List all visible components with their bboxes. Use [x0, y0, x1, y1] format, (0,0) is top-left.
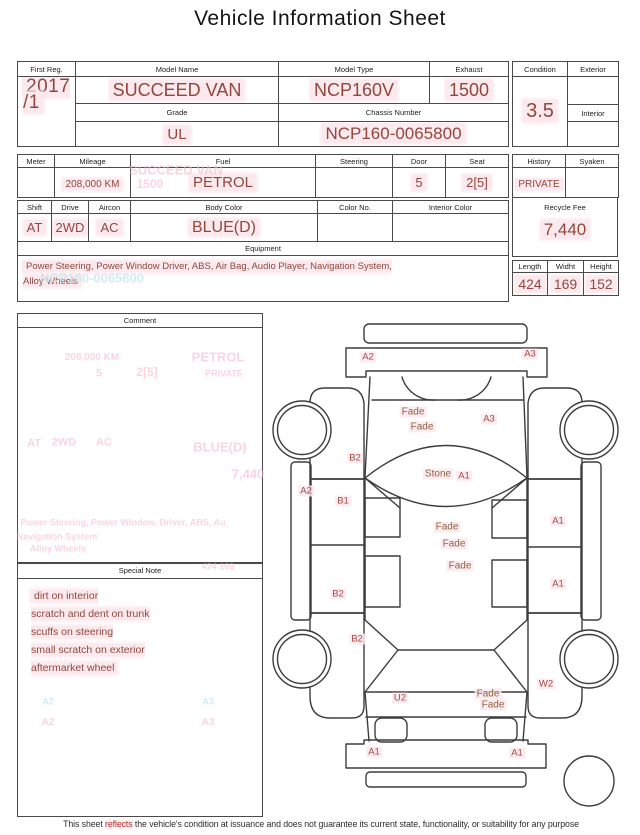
recycle-fee-value: 7,440: [513, 220, 617, 240]
rear-window-shape: [365, 650, 527, 692]
shift-header: Shift: [18, 201, 52, 214]
mileage-value: 208,000 KM: [55, 168, 131, 198]
special-note-body: dirt on interior scratch and dent on tru…: [18, 579, 262, 676]
pillar-box-left-lower: [365, 556, 400, 607]
rear-lamp-right: [485, 718, 517, 742]
aircon-value: AC: [89, 214, 131, 242]
doors-right: [528, 479, 582, 613]
rocker-right: [581, 462, 601, 620]
special-note-box: Special Note dirt on interior scratch an…: [17, 563, 263, 817]
first-reg-header: First Reg.: [18, 62, 76, 77]
fuel-header: Fuel: [131, 155, 316, 168]
seat-value: 2[5]: [446, 168, 509, 198]
wheel-front-right: [560, 401, 618, 459]
chassis-number-value: NCP160-0065800: [279, 122, 509, 147]
mileage-header: Mileage: [55, 155, 131, 168]
rear-bottom-strip: [366, 772, 526, 787]
seat-header: Seat: [446, 155, 509, 168]
disclaimer-text: This sheet reflects the vehicle's condit…: [10, 819, 632, 829]
wheel-rear-right: [560, 630, 618, 688]
exhaust-header: Exhaust: [430, 62, 509, 77]
recycle-fee-header: Recycle Fee: [513, 203, 617, 212]
rear-panel-lines: [365, 692, 527, 741]
syaken-header: Syaken: [566, 155, 619, 168]
chassis-number-header: Chassis Number: [279, 104, 509, 122]
height-value: 152: [584, 273, 619, 296]
hood-side-right: [523, 377, 527, 477]
history-header: History: [513, 155, 566, 168]
condition-score: 3.5: [513, 77, 568, 147]
shift-value: AT: [18, 214, 52, 242]
exterior-header: Exterior: [568, 62, 619, 77]
registration-table: First Reg. Model Name Model Type Exhaust…: [17, 61, 509, 147]
color-no-value-cell: [318, 214, 393, 242]
grade-value: UL: [76, 122, 279, 147]
color-no-header: Color No.: [318, 201, 393, 214]
specs-table-2: Shift Drive Aircon Body Color Color No. …: [17, 200, 509, 302]
drive-value: 2WD: [52, 214, 89, 242]
pillar-box-right-lower: [492, 560, 527, 607]
disclaimer-emphasis: reflects: [105, 819, 133, 829]
specs-table-1: Meter Mileage Fuel Steering Door Seat 20…: [17, 154, 509, 198]
equipment-header: Equipment: [18, 242, 509, 256]
recycle-fee-box: Recycle Fee 7,440: [512, 197, 618, 257]
pillar-box-right-upper: [492, 500, 527, 538]
width-header: Widht: [548, 261, 584, 273]
comment-box: Comment: [17, 313, 263, 563]
model-type-header: Model Type: [279, 62, 430, 77]
door-header: Door: [393, 155, 446, 168]
steering-header: Steering: [316, 155, 393, 168]
length-header: Length: [513, 261, 548, 273]
rear-lamp-left: [375, 718, 407, 742]
meter-header: Meter: [18, 155, 55, 168]
wheel-rear-left: [273, 630, 331, 688]
fuel-value: PETROL: [131, 168, 316, 198]
model-name-header: Model Name: [76, 62, 279, 77]
body-color-value: BLUE(D): [131, 214, 318, 242]
front-bumper-shape: [346, 348, 547, 377]
wheel-front-left: [273, 401, 331, 459]
headlight-left-arc: [402, 377, 435, 400]
width-value: 169: [548, 273, 584, 296]
drive-header: Drive: [52, 201, 89, 214]
aircon-header: Aircon: [89, 201, 131, 214]
height-header: Height: [584, 261, 619, 273]
steering-value-cell: [316, 168, 393, 198]
hood-side-left: [365, 377, 370, 477]
comment-header: Comment: [18, 314, 262, 328]
headlight-right-arc: [458, 377, 491, 400]
length-value: 424: [513, 273, 548, 296]
door-value: 5: [393, 168, 446, 198]
history-table: History Syaken PRIVATE: [512, 154, 619, 198]
model-type-value: NCP160V: [279, 77, 430, 104]
meter-value-cell: [18, 168, 55, 198]
equipment-list: Power Steering, Power Window Driver, ABS…: [18, 256, 509, 302]
disclaimer-pre: This sheet: [63, 819, 105, 829]
interior-value-cell: [568, 122, 619, 147]
c-pillar-lines: [365, 620, 527, 650]
doors-left: [310, 479, 364, 613]
exterior-value-cell: [568, 77, 619, 105]
interior-color-value-cell: [393, 214, 509, 242]
model-name-value: SUCCEED VAN: [76, 77, 279, 104]
car-damage-diagram: [270, 315, 635, 817]
dimensions-table: Length Widht Height 424 169 152: [512, 260, 619, 296]
page-title: Vehicle Information Sheet: [0, 7, 640, 31]
rear-bumper-shape: [346, 740, 546, 768]
front-top-strip: [364, 324, 527, 343]
grade-header: Grade: [76, 104, 279, 122]
body-color-header: Body Color: [131, 201, 318, 214]
special-note-text: dirt on interior scratch and dent on tru…: [31, 590, 150, 674]
first-reg-value: 2017 /1: [18, 77, 76, 147]
exhaust-value: 1500: [430, 77, 509, 104]
comment-body: [18, 328, 262, 563]
spare-wheel: [564, 756, 614, 806]
interior-color-header: Interior Color: [393, 201, 509, 214]
syaken-value-cell: [566, 168, 619, 198]
disclaimer-post: the vehicle's condition at issuance and …: [133, 819, 579, 829]
special-note-header: Special Note: [18, 564, 262, 579]
interior-header: Interior: [568, 105, 619, 122]
history-value: PRIVATE: [513, 168, 566, 198]
condition-table: Condition Exterior 3.5 Interior: [512, 61, 619, 147]
condition-header: Condition: [513, 62, 568, 77]
rocker-left: [291, 462, 311, 620]
vehicle-information-sheet: Vehicle Information Sheet First Reg. Mod…: [0, 0, 640, 835]
